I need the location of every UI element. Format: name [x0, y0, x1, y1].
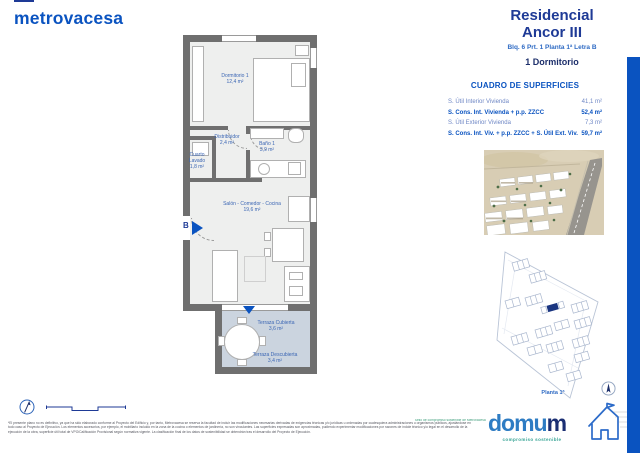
site-plan — [480, 250, 630, 402]
north-compass-icon — [601, 381, 616, 396]
sofa — [212, 250, 238, 302]
surface-table: CUADRO DE SUPERFICIES S. Útil Interior V… — [448, 81, 602, 139]
surface-value: 52,4 m² — [581, 108, 602, 119]
laundry-appliance — [288, 162, 301, 175]
window-top — [222, 35, 256, 42]
surface-row: S. Cons. Int. Vivienda + p.p. ZZCC 52,4 … — [448, 108, 602, 119]
surface-table-title: CUADRO DE SUPERFICIES — [448, 81, 602, 90]
chair — [264, 232, 271, 241]
unit-type: 1 Dormitorio — [467, 57, 637, 67]
accent-side-bar — [627, 57, 640, 453]
entrance-letter: B — [183, 221, 189, 230]
terrace-chair — [259, 336, 266, 346]
surface-label: S. Cons. Int. Vivienda + p.p. ZZCC — [448, 108, 544, 119]
surface-value: 7,3 m² — [585, 118, 602, 129]
wardrobe — [192, 46, 204, 122]
room-label-dormitorio: Dormitorio 1 12,4 m² — [211, 73, 259, 85]
metrovacesa-logo: metrovacesa — [14, 8, 123, 29]
window-salon — [310, 198, 317, 222]
wall-salon-top — [190, 178, 262, 182]
coffee-table — [244, 256, 266, 282]
surface-value: 59,7 m² — [581, 129, 602, 140]
kitchen-sink — [289, 272, 303, 280]
brand-mark-line — [14, 0, 34, 2]
nightstand — [295, 45, 309, 56]
wall-terrace-bottom — [215, 367, 317, 374]
terrace-chair — [237, 317, 247, 324]
surface-row: S. Útil Exterior Vivienda 7,3 m² — [448, 118, 602, 129]
bed-pillow — [291, 63, 306, 87]
page-title-project: Ancor III — [467, 24, 637, 41]
house-icon — [582, 400, 630, 448]
kitchen-hob — [289, 286, 303, 296]
bath-sink — [250, 128, 284, 139]
room-label-distribuidor: Distribuidor 2,4 m² — [207, 134, 247, 146]
unit-reference: Blq. 6 Prt. 1 Planta 1ª Letra B — [467, 44, 637, 51]
surface-label: S. Útil Exterior Vivienda — [448, 118, 511, 129]
surface-label: S. Cons. Int. Viv. + p.p. ZZCC + S. Útil… — [448, 129, 578, 140]
domum-logo: domum — [488, 412, 566, 435]
surface-row: S. Cons. Int. Viv. + p.p. ZZCC + S. Útil… — [448, 129, 602, 140]
room-label-terraza-descubierta: Terraza Descubierta 3,4 m² — [249, 352, 301, 364]
title-block: Residencial Ancor III Blq. 6 Prt. 1 Plan… — [467, 7, 637, 67]
scale-bar — [46, 404, 126, 413]
room-label-bano: Baño 1 3,9 m² — [247, 141, 287, 153]
entrance-arrow-icon — [192, 221, 203, 235]
dining-table — [272, 228, 304, 262]
wall-left — [183, 35, 190, 311]
toilet — [288, 128, 304, 143]
eco-note: Sello de compromiso sostenible de Metrov… — [373, 419, 486, 423]
aerial-photo — [484, 150, 604, 235]
domum-tagline: compromiso sostenible — [491, 437, 573, 442]
surface-value: 41,1 m² — [582, 97, 602, 108]
terrace-sliding-door — [222, 304, 288, 311]
plan-sheet: metrovacesa Residencial Ancor III Blq. 6… — [0, 0, 640, 453]
washing-machine-icon — [258, 163, 270, 175]
plan-north-icon — [19, 399, 35, 415]
surface-label: S. Útil Interior Vivienda — [448, 97, 509, 108]
wall-dorm-partition-left — [190, 126, 228, 130]
room-label-salon: Salón - Comedor - Cocina 19,6 m² — [212, 201, 292, 213]
terrace-chair — [218, 336, 225, 346]
surface-row: S. Útil Interior Vivienda 41,1 m² — [448, 97, 602, 108]
room-label-terraza-cubierta: Terraza Cubierta 3,6 m² — [253, 320, 299, 332]
siteplan-floor-label: Planta 1ª — [520, 390, 586, 396]
terrace-chair — [237, 359, 247, 366]
terrace-door-arrow-icon — [243, 306, 255, 314]
window-bedroom — [310, 48, 317, 68]
page-title-residencial: Residencial — [467, 7, 637, 24]
room-label-lavado: Cuarto Lavado 1,8 m² — [184, 152, 210, 170]
